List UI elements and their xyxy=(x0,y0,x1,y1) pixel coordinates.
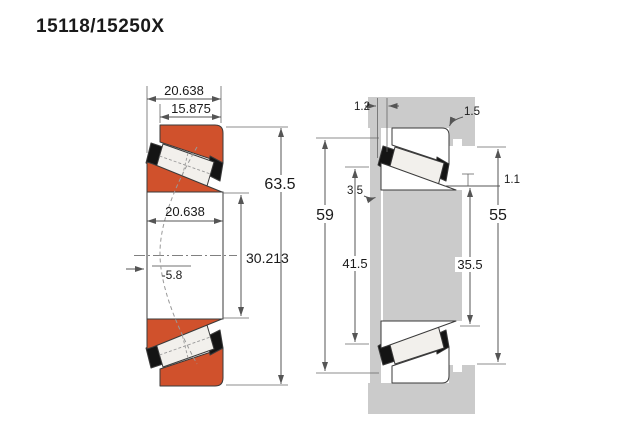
dim-bore-diameter: 30.213 xyxy=(246,250,289,266)
bearing-drawing: 20.638 15.875 63.5 20.638 30.213 -5.8 xyxy=(0,0,640,440)
bearing-half xyxy=(146,125,223,192)
dim-side-gap: 1.2 xyxy=(354,101,370,113)
dim-recess: 35.5 xyxy=(457,257,482,272)
bearing-half-mirror xyxy=(146,319,223,386)
drawing-page: 15118/15250X xyxy=(0,0,640,440)
dim-shoulder-outer: 59 xyxy=(316,207,334,224)
shaft-core xyxy=(383,190,462,321)
dim-shaft-abutment: 41.5 xyxy=(342,256,367,271)
mounted-half-mirror xyxy=(368,321,475,414)
right-view-mounting: 1.2 1.5 3.5 1.1 59 41.5 xyxy=(312,97,520,414)
dim-cup-clearance: 1.1 xyxy=(504,174,520,186)
dim-load-center: -5.8 xyxy=(162,268,183,282)
dim-outer-diameter: 63.5 xyxy=(264,176,295,193)
dim-total-width: 20.638 xyxy=(164,83,204,98)
dim-cup-width: 15.875 xyxy=(171,101,211,116)
dim-housing-abutment: 55 xyxy=(489,207,507,224)
left-view-cross-section: 20.638 15.875 63.5 20.638 30.213 -5.8 xyxy=(126,83,299,386)
dim-housing-fillet: 1.5 xyxy=(464,106,480,118)
dim-cone-width: 20.638 xyxy=(165,204,205,219)
mounted-half xyxy=(368,97,475,190)
